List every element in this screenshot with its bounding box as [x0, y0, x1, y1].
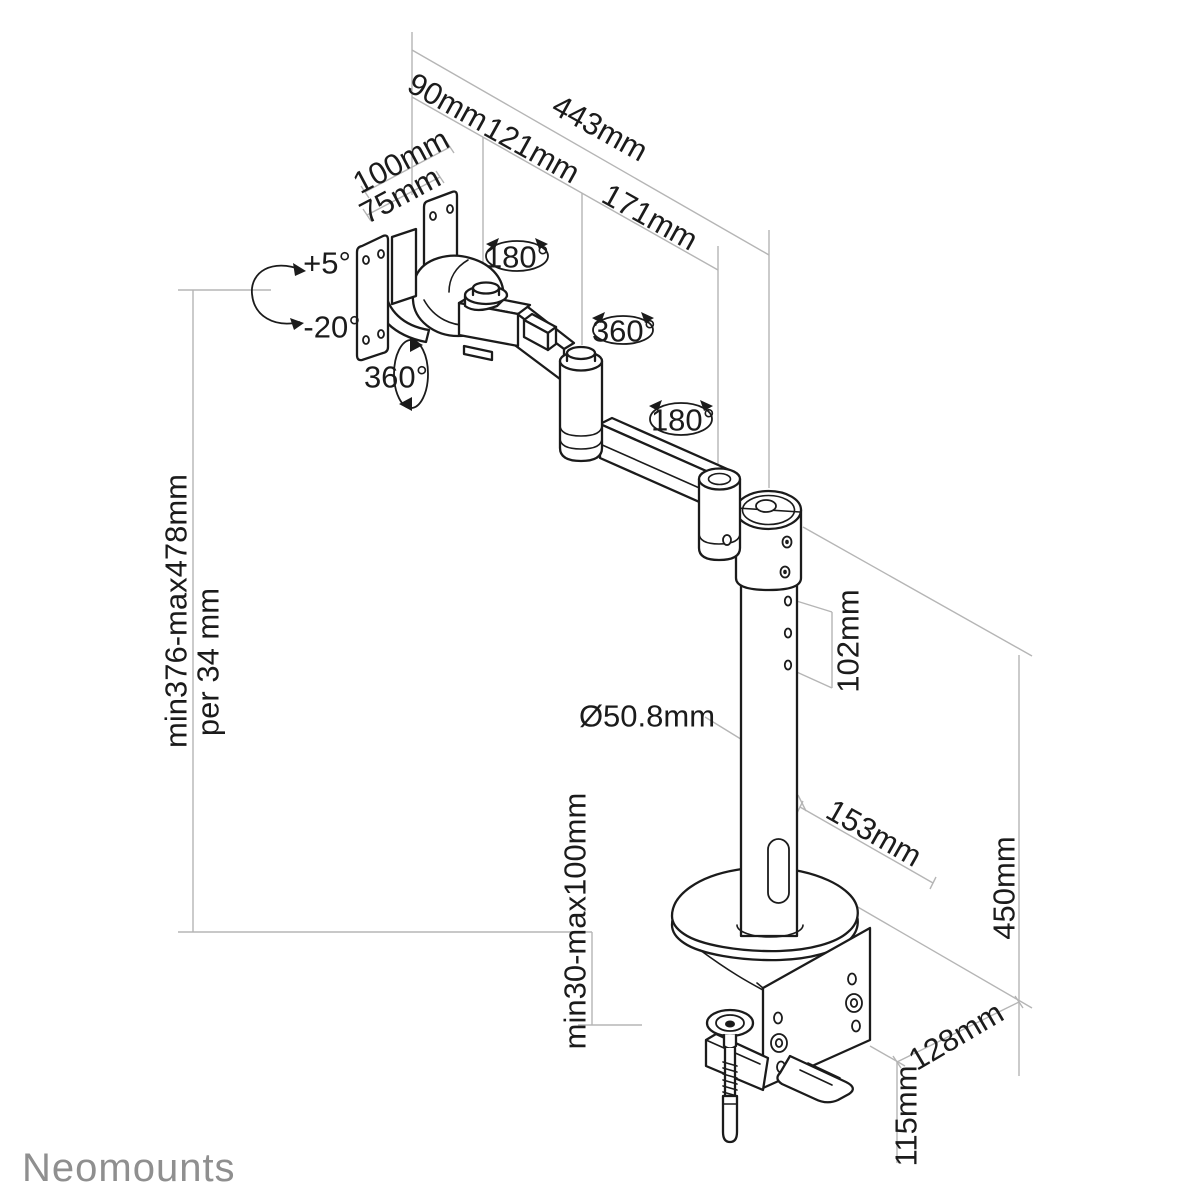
label-swivel-joint2: 360°	[592, 314, 656, 349]
label-arm-seg1: 90mm	[402, 66, 494, 138]
screw-knob	[723, 1096, 737, 1142]
hinge-channel	[392, 229, 416, 304]
brand-logo: Neomounts	[22, 1146, 236, 1190]
upper-arm	[512, 304, 602, 461]
tilt-arc	[252, 266, 302, 324]
label-clamp-depth: 128mm	[903, 995, 1010, 1078]
label-rotate-vesa: 360°	[364, 360, 428, 395]
elbow-joint	[699, 479, 740, 560]
label-pole-height: 450mm	[987, 836, 1022, 939]
label-base-depth: 153mm	[820, 792, 927, 873]
label-swivel-joint1: 180°	[485, 240, 549, 275]
label-clamp-thickness: min30-max100mm	[558, 793, 593, 1050]
label-clamp-height: 115mm	[889, 1065, 924, 1166]
label-tilt-up: +5°	[303, 246, 351, 281]
monitor-arm-technical-diagram: 90mm 443mm 121mm 171mm 100mm 75mm +5° -2…	[0, 0, 1200, 1200]
pole	[736, 491, 803, 937]
label-height-range: min376-max478mm	[159, 474, 194, 748]
lower-arm	[600, 418, 740, 560]
label-arm-seg3: 171mm	[596, 177, 703, 258]
dimension-labels: 90mm 443mm 121mm 171mm 100mm 75mm +5° -2…	[159, 66, 1022, 1167]
label-tilt-down: -20°	[303, 310, 360, 345]
label-swivel-joint3: 180°	[651, 403, 715, 438]
label-height-step: per 34 mm	[191, 588, 226, 736]
label-pin-spacing: 102mm	[831, 589, 866, 692]
diagram-page: 90mm 443mm 121mm 171mm 100mm 75mm +5° -2…	[0, 0, 1200, 1200]
label-pole-diameter: Ø50.8mm	[579, 699, 715, 734]
